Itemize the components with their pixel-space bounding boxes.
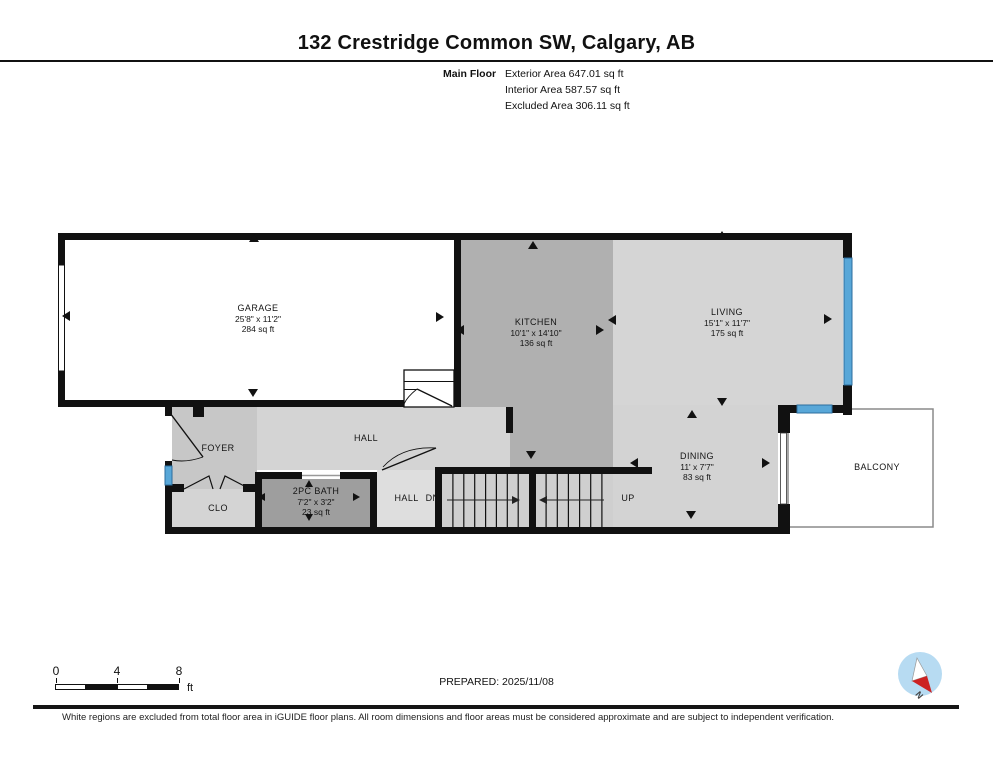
- room-dims: 15'1" x 11'7": [704, 318, 750, 328]
- room-area: 136 sq ft: [510, 338, 561, 348]
- room-label-bath: 2PC BATH 7'2" x 3'2" 23 sq ft: [293, 486, 340, 517]
- garage-landing: [404, 370, 454, 407]
- wall-closet-stub-left: [172, 484, 184, 492]
- wall-entry-jamb: [193, 407, 204, 417]
- wall-foyer-left-b: [165, 461, 172, 466]
- floorplan-page: 132 Crestridge Common SW, Calgary, AB Ma…: [0, 0, 993, 768]
- foyer-window: [165, 466, 172, 485]
- wall-bath-top-a: [255, 472, 302, 479]
- wall-stair-top: [435, 467, 652, 474]
- room-label-hall: HALL: [354, 433, 378, 443]
- wall-garage-left-top: [58, 233, 65, 265]
- room-label-balcony: BALCONY: [854, 462, 900, 472]
- room-area: 83 sq ft: [680, 472, 714, 482]
- room-label-dining: DINING 11' x 7'7" 83 sq ft: [680, 451, 714, 482]
- room-area: 175 sq ft: [704, 328, 750, 338]
- room-label-garage: GARAGE 25'8" x 11'2" 284 sq ft: [235, 303, 281, 334]
- wall-garage-bottom: [58, 400, 405, 407]
- fill-kitchen-lower: [510, 407, 613, 470]
- landing-box: [404, 370, 454, 407]
- wall-living-right-bottom: [843, 385, 852, 415]
- dining-slider-door: [781, 433, 787, 504]
- hall-dn-hall: HALL: [395, 493, 419, 503]
- room-label-foyer: FOYER: [201, 443, 234, 453]
- balcony-door-window: [797, 405, 832, 413]
- wall-foyer-left-c: [165, 485, 172, 534]
- room-name: DINING: [680, 451, 714, 461]
- living-window: [844, 258, 852, 385]
- room-label-living: LIVING 15'1" x 11'7" 175 sq ft: [704, 307, 750, 338]
- wall-bath-right: [370, 472, 377, 534]
- prepared-date: PREPARED: 2025/11/08: [0, 676, 993, 688]
- wall-dining-right-top: [778, 405, 790, 433]
- wall-living-right-top: [843, 233, 852, 258]
- wall-garage-kitchen: [454, 240, 461, 407]
- stairs-up-label: UP: [621, 493, 634, 503]
- garage-door: [59, 265, 65, 371]
- room-label-hall-dn: HALL DN: [395, 493, 440, 503]
- fill-hall: [257, 407, 510, 470]
- room-name: 2PC BATH: [293, 486, 340, 496]
- room-dims: 11' x 7'7": [680, 462, 714, 472]
- room-area: 284 sq ft: [235, 324, 281, 334]
- room-dims: 10'1" x 14'10": [510, 328, 561, 338]
- wall-stair-mid: [529, 467, 536, 534]
- floor-fills: [65, 240, 933, 529]
- floorplan-drawing: [0, 0, 993, 768]
- room-name: LIVING: [704, 307, 750, 317]
- wall-top: [58, 233, 852, 240]
- room-dims: 25'8" x 11'2": [235, 314, 281, 324]
- room-name: GARAGE: [235, 303, 281, 313]
- room-label-kitchen: KITCHEN 10'1" x 14'10" 136 sq ft: [510, 317, 561, 348]
- room-dims: 7'2" x 3'2": [293, 497, 340, 507]
- wall-kitchen-stub: [506, 407, 513, 433]
- wall-dining-right-bottom: [778, 504, 790, 534]
- hall-dn-dn: DN: [426, 493, 440, 503]
- room-name: KITCHEN: [510, 317, 561, 327]
- footer-divider: [33, 705, 959, 709]
- wall-living-bottom-a: [790, 405, 797, 413]
- wall-bath-left: [255, 472, 262, 534]
- disclaimer-text: White regions are excluded from total fl…: [62, 712, 834, 723]
- room-area: 23 sq ft: [293, 507, 340, 517]
- wall-bath-top-b: [340, 472, 377, 479]
- room-label-closet: CLO: [208, 503, 228, 513]
